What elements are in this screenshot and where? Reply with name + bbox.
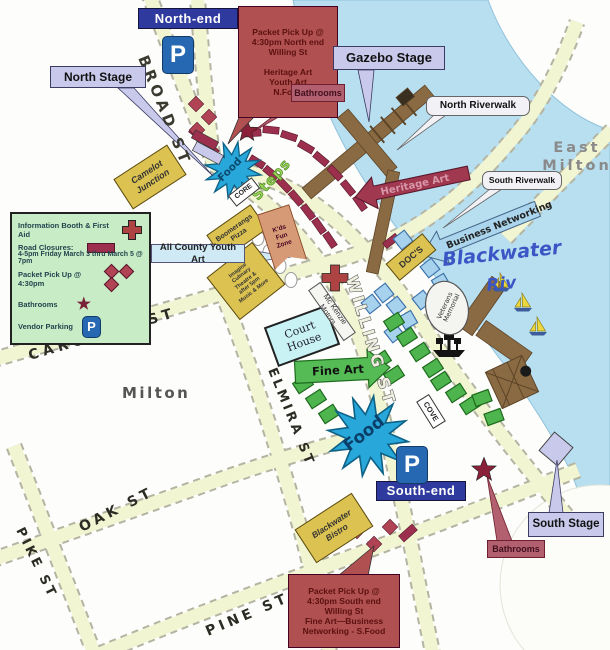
legend-parking-text: Vendor Parking [18,322,73,331]
packet-pickup-south-callout: Packet Pick Up @ 4:30pm South end Willin… [288,574,400,648]
map-legend: Information Booth & First Aid Road Closu… [10,212,151,345]
south-riverwalk-label: South Riverwalk [482,171,562,190]
packet-south-line: Willing St [325,606,364,616]
parking-icon: P [82,316,101,338]
north-riverwalk-label: North Riverwalk [426,96,530,116]
north-stage-label: North Stage [50,66,146,88]
legend-packet-text: Packet Pick Up @ 4:30pm [18,270,102,288]
packet-north-line: 4:30pm North end [252,37,324,47]
packet-south-line: Packet Pick Up @ [308,586,380,596]
packet-south-line: Fine Art—Business [305,616,383,626]
packet-pickup-diamond-icons [102,266,143,292]
bathroom-star-south [472,457,496,480]
north-end-badge: North-end [138,8,238,29]
first-aid-cross-icon [121,219,143,241]
svg-text:Fine Art: Fine Art [312,362,365,379]
packet-north-line: Heritage Art [264,67,312,77]
all-county-youth-art-label: All County Youth Art [151,244,245,263]
bathroom-star-icon: ★ [77,294,91,314]
gazebo-stage-label: Gazebo Stage [333,46,445,70]
milton-label: Milton [122,384,190,402]
bathrooms-north-label: Bathrooms [291,84,345,102]
festival-street-map: Food Food Steps Heritage Art Business Ne… [0,0,610,650]
bathrooms-south-label: Bathrooms [487,540,545,558]
legend-closures-detail: 4-5pm Friday March 3 thru March 5 @ 7pm [18,251,143,265]
east-milton-label-1: East [553,140,600,156]
packet-north-line: Packet Pick Up @ [252,27,324,37]
parking-sign-north: P [162,36,194,74]
packet-north-line: Willing St [269,47,308,57]
legend-info-text: Information Booth & First Aid [18,221,121,239]
packet-south-line: Networking - S.Food [303,626,386,636]
river-name-label-2: Riv [485,273,518,296]
south-stage-label: South Stage [528,512,604,537]
south-end-badge: South-end [376,481,466,501]
parking-sign-south: P [396,446,428,484]
packet-south-line: 4:30pm South end [307,596,381,606]
legend-bathrooms-text: Bathrooms [18,300,58,309]
